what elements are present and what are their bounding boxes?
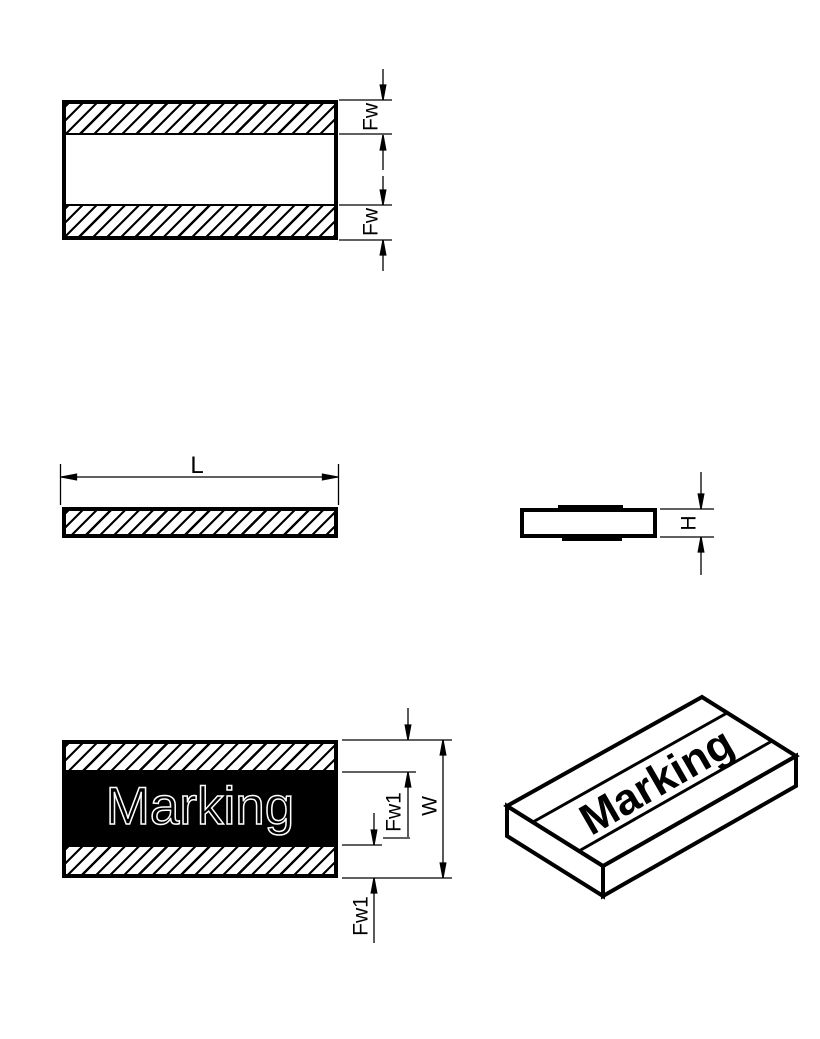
arrow-up-icon [405, 772, 411, 787]
dim-label-width: W [420, 796, 441, 816]
drawing-canvas: Marking [0, 0, 820, 1039]
arrow-left-icon [62, 474, 77, 480]
dim-label-length: L [190, 454, 203, 478]
arrow-down-icon [405, 725, 411, 740]
arrow-up-icon [440, 740, 446, 755]
top-view-dimensions [339, 69, 392, 271]
arrow-down-icon [371, 830, 377, 845]
dim-label-fw1-lower: Fw1 [351, 896, 372, 936]
arrow-up-icon [371, 878, 377, 893]
dim-label-fw1-upper: Fw1 [384, 792, 405, 832]
dim-label-fw-upper: Fw [361, 103, 382, 131]
arrow-up-icon [380, 135, 386, 150]
arrow-down-icon [440, 863, 446, 878]
arrow-down-icon [380, 190, 386, 205]
arrow-up-icon [380, 240, 386, 255]
dim-label-fw-lower: Fw [361, 208, 382, 236]
arrow-right-icon [323, 474, 338, 480]
arrow-down-icon [380, 85, 386, 100]
arrow-down-icon [698, 494, 704, 509]
dim-label-height: H [679, 515, 700, 530]
arrow-up-icon [698, 537, 704, 552]
